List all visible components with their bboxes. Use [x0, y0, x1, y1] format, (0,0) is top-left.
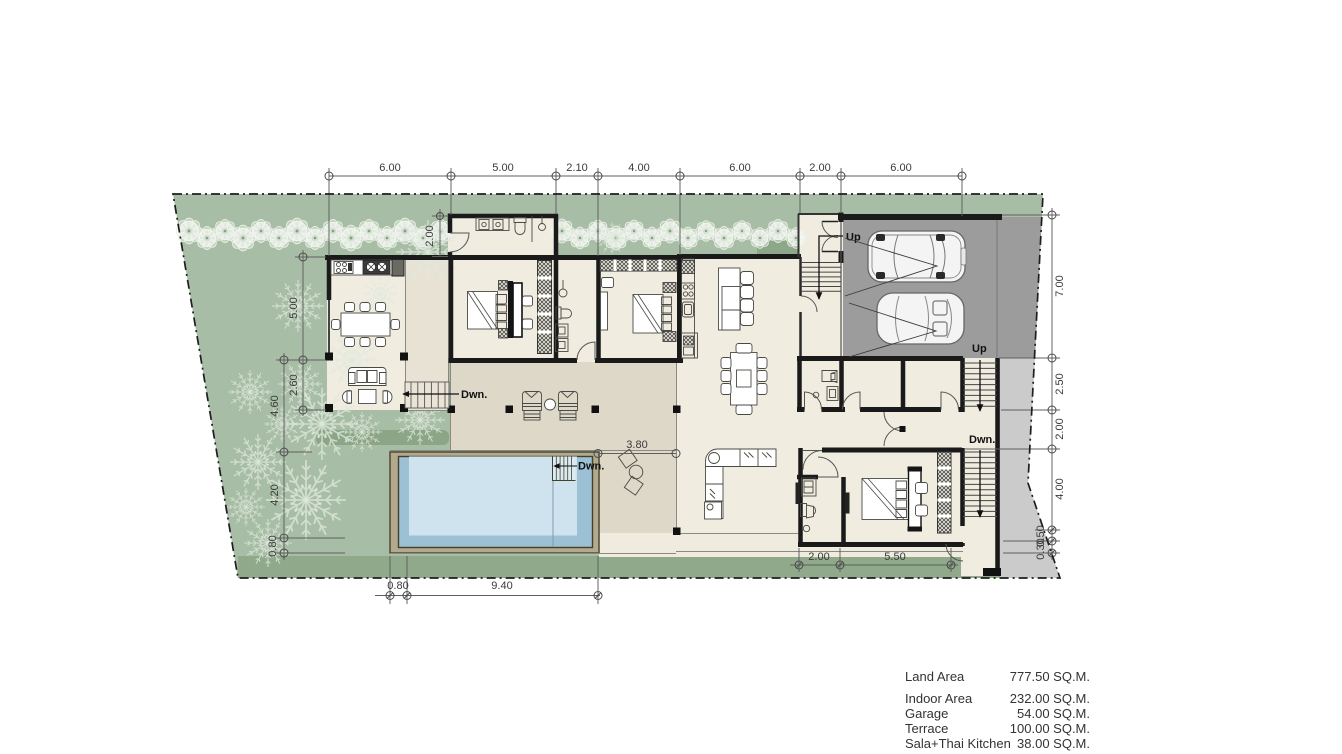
svg-text:2.00: 2.00: [424, 225, 436, 246]
svg-text:Dwn.: Dwn.: [461, 389, 487, 401]
svg-text:2.50: 2.50: [1054, 373, 1066, 394]
svg-text:54.00 SQ.M.: 54.00 SQ.M.: [1017, 706, 1090, 721]
svg-text:9.40: 9.40: [491, 580, 512, 592]
svg-text:Garage: Garage: [905, 706, 948, 721]
svg-text:4.60: 4.60: [269, 395, 281, 416]
svg-text:6.00: 6.00: [379, 162, 400, 174]
svg-text:0.30: 0.30: [1035, 538, 1047, 559]
svg-text:38.00 SQ.M.: 38.00 SQ.M.: [1017, 736, 1090, 751]
svg-text:777.50 SQ.M.: 777.50 SQ.M.: [1010, 669, 1090, 684]
svg-text:6.00: 6.00: [890, 162, 911, 174]
svg-text:Sala+Thai Kitchen: Sala+Thai Kitchen: [905, 736, 1011, 751]
svg-text:2.00: 2.00: [1054, 418, 1066, 439]
svg-text:Dwn.: Dwn.: [969, 434, 995, 446]
svg-text:2.00: 2.00: [808, 551, 829, 563]
svg-text:5.00: 5.00: [492, 162, 513, 174]
svg-text:0.80: 0.80: [387, 580, 408, 592]
svg-text:4.00: 4.00: [628, 162, 649, 174]
svg-text:4.00: 4.00: [1054, 478, 1066, 499]
svg-text:Land Area: Land Area: [905, 669, 965, 684]
svg-text:4.20: 4.20: [269, 484, 281, 505]
svg-text:2.00: 2.00: [809, 162, 830, 174]
svg-text:2.10: 2.10: [566, 162, 587, 174]
svg-text:Up: Up: [972, 343, 987, 355]
svg-text:5.00: 5.00: [288, 297, 300, 318]
svg-text:2.60: 2.60: [288, 374, 300, 395]
svg-text:100.00 SQ.M.: 100.00 SQ.M.: [1010, 721, 1090, 736]
svg-text:Terrace: Terrace: [905, 721, 948, 736]
svg-text:232.00 SQ.M.: 232.00 SQ.M.: [1010, 691, 1090, 706]
svg-text:6.00: 6.00: [729, 162, 750, 174]
svg-text:Indoor Area: Indoor Area: [905, 691, 973, 706]
svg-text:5.50: 5.50: [884, 551, 905, 563]
svg-text:0.80: 0.80: [267, 535, 279, 556]
svg-text:7.00: 7.00: [1054, 275, 1066, 296]
svg-text:3.80: 3.80: [626, 439, 647, 451]
svg-text:Dwn.: Dwn.: [578, 461, 604, 473]
